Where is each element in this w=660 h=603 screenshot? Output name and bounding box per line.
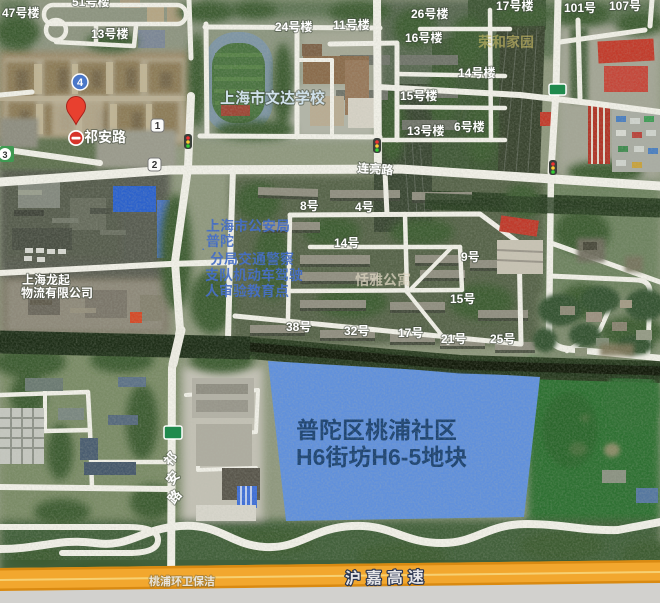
svg-text:17号楼: 17号楼 (496, 0, 533, 14)
svg-text:3: 3 (2, 148, 7, 161)
svg-text:26号楼: 26号楼 (411, 5, 448, 22)
svg-text:13号楼: 13号楼 (407, 122, 444, 139)
svg-text:9号: 9号 (461, 248, 480, 265)
svg-text:恬雅公寓: 恬雅公寓 (355, 270, 411, 290)
svg-text:物流有限公司: 物流有限公司 (21, 284, 93, 301)
svg-text:24号楼: 24号楼 (275, 18, 312, 35)
svg-text:25号: 25号 (490, 330, 515, 347)
svg-text:桃浦环卫保洁: 桃浦环卫保洁 (149, 573, 215, 589)
svg-text:荣和家园: 荣和家园 (478, 32, 534, 52)
svg-text:连亮路: 连亮路 (357, 159, 394, 178)
svg-text:101号: 101号 (564, 0, 596, 16)
svg-text:17号: 17号 (398, 324, 423, 341)
svg-text:1: 1 (155, 117, 161, 132)
svg-text:祁安路: 祁安路 (84, 127, 126, 147)
svg-text:16号楼: 16号楼 (405, 29, 442, 46)
svg-text:21号: 21号 (441, 330, 466, 347)
svg-text:8号: 8号 (300, 197, 319, 214)
svg-text:沪嘉高速: 沪嘉高速 (345, 564, 429, 589)
svg-text:14号楼: 14号楼 (458, 64, 495, 81)
svg-text:107号: 107号 (609, 0, 641, 14)
svg-text:4号: 4号 (355, 198, 374, 215)
svg-text:11号楼: 11号楼 (333, 16, 370, 33)
svg-text:14号: 14号 (334, 234, 359, 251)
svg-text:4: 4 (77, 74, 84, 90)
svg-text:上海市文达学校: 上海市文达学校 (220, 87, 325, 108)
svg-text:38号: 38号 (286, 318, 311, 335)
svg-text:6号楼: 6号楼 (454, 118, 485, 135)
svg-text:51号楼: 51号楼 (72, 0, 109, 10)
svg-text:2: 2 (152, 156, 158, 171)
svg-text:15号: 15号 (450, 290, 475, 307)
svg-text:13号楼: 13号楼 (91, 25, 128, 42)
svg-text:15号楼: 15号楼 (400, 87, 437, 104)
svg-text:32号: 32号 (344, 322, 369, 339)
svg-text:47号楼: 47号楼 (2, 4, 39, 21)
